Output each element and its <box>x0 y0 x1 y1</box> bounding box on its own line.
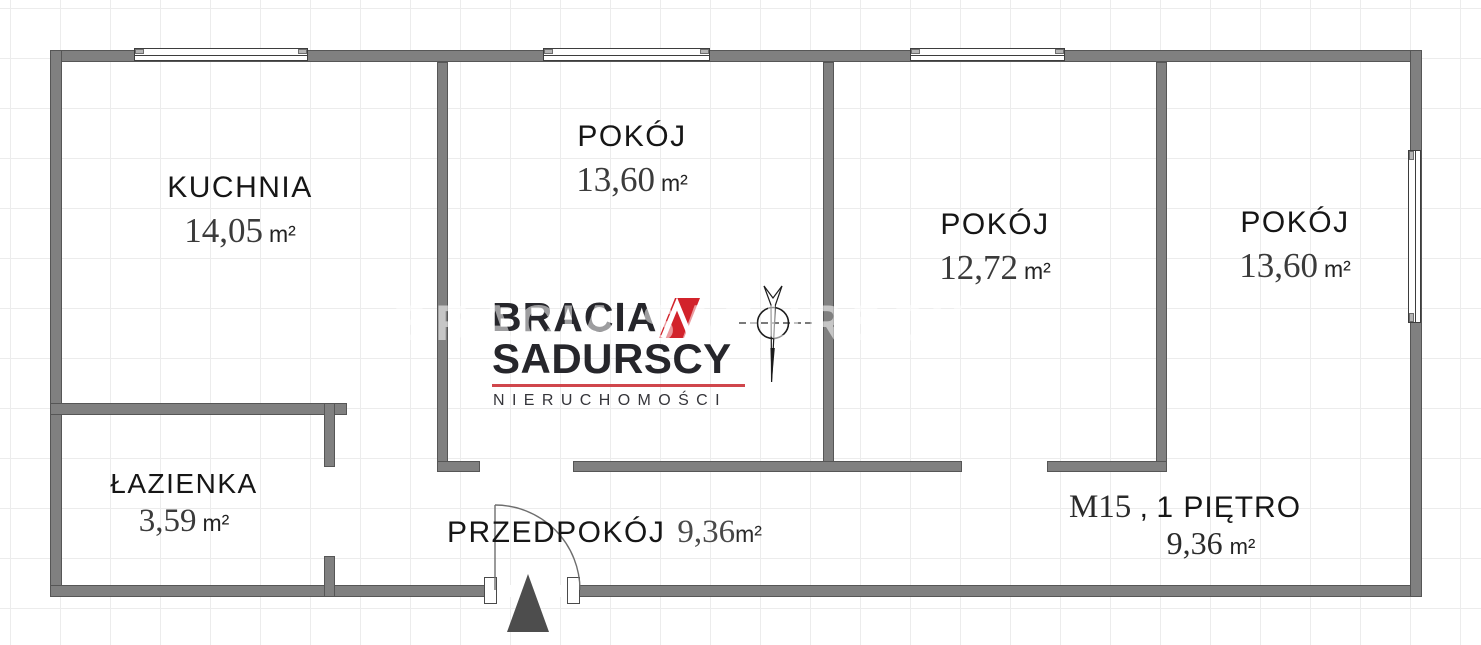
room-area-value: 14,05 <box>184 211 263 250</box>
brand-logo: BRACIA SADURSCY NIERUCHOMOŚCI <box>492 296 745 410</box>
window-cap <box>298 49 307 54</box>
apartment-id: M15 <box>1069 489 1131 525</box>
room-area-unit: m² <box>202 510 229 536</box>
window-cap <box>1055 49 1064 54</box>
apartment-area-value: 9,36 <box>1167 525 1223 561</box>
room-label-pokoj-1: POKÓJ 13,60m² <box>482 120 782 200</box>
wall-hall-right <box>1047 461 1167 472</box>
room-name: ŁAZIENKA <box>59 468 309 500</box>
room-name: PRZEDPOKÓJ <box>447 516 665 549</box>
wall-bathroom-top <box>50 403 347 415</box>
room-name: POKÓJ <box>845 208 1145 242</box>
window-room1 <box>543 48 710 61</box>
entrance-triangle-icon <box>507 574 549 632</box>
window-cap <box>700 49 709 54</box>
apartment-separator: , <box>1131 491 1156 524</box>
room-area-value: 13,60 <box>576 160 655 199</box>
apartment-label: M15 , 1 PIĘTRO 9,36m² <box>1035 489 1335 562</box>
room-label-przedpokoj: PRZEDPOKÓJ9,36m² <box>447 514 762 551</box>
room-area-value: 12,72 <box>939 248 1018 287</box>
apartment-area-unit: m² <box>1230 534 1256 559</box>
brand-divider <box>492 384 745 387</box>
room-area-unit: m² <box>1324 256 1351 282</box>
window-cap <box>544 49 553 54</box>
wall-room1-room2 <box>823 62 834 472</box>
window-kitchen <box>134 48 308 61</box>
room-area-unit: m² <box>269 221 296 247</box>
room-name: KUCHNIA <box>90 171 390 205</box>
room-area-unit: m² <box>661 170 688 196</box>
room-area-value: 9,36 <box>677 514 735 550</box>
wall-bathroom-right-upper <box>324 403 335 467</box>
room-name: POKÓJ <box>482 120 782 154</box>
room-label-kuchnia: KUCHNIA 14,05m² <box>90 171 390 251</box>
brand-tagline: NIERUCHOMOŚCI <box>492 392 745 410</box>
room-area-unit: m² <box>735 521 762 547</box>
brand-name-line2: SADURSCY <box>492 338 745 380</box>
window-cap <box>1409 313 1414 322</box>
wall-outer-right <box>1410 50 1422 597</box>
room-label-pokoj-3: POKÓJ 13,60m² <box>1145 206 1445 286</box>
window-room2 <box>910 48 1065 61</box>
wall-bathroom-right-lower <box>324 556 335 597</box>
floor-plan: KUCHNIA 14,05m² POKÓJ 13,60m² POKÓJ 12,7… <box>0 0 1481 645</box>
brand-name-line1: BRACIA <box>492 296 745 338</box>
brand-logo-mark-icon <box>654 297 702 339</box>
window-cap <box>1409 151 1414 160</box>
room-label-pokoj-2: POKÓJ 12,72m² <box>845 208 1145 288</box>
window-cap <box>911 49 920 54</box>
room-area-unit: m² <box>1024 258 1051 284</box>
room-label-lazienka: ŁAZIENKA 3,59m² <box>59 468 309 540</box>
apartment-floor: 1 PIĘTRO <box>1156 491 1301 524</box>
north-arrow-icon <box>735 278 820 390</box>
room-area-value: 3,59 <box>139 503 197 539</box>
room-area-value: 13,60 <box>1239 246 1318 285</box>
wall-outer-bottom <box>50 585 1422 597</box>
wall-kitchen-room1 <box>437 62 448 472</box>
room-name: POKÓJ <box>1145 206 1445 240</box>
window-cap <box>135 49 144 54</box>
